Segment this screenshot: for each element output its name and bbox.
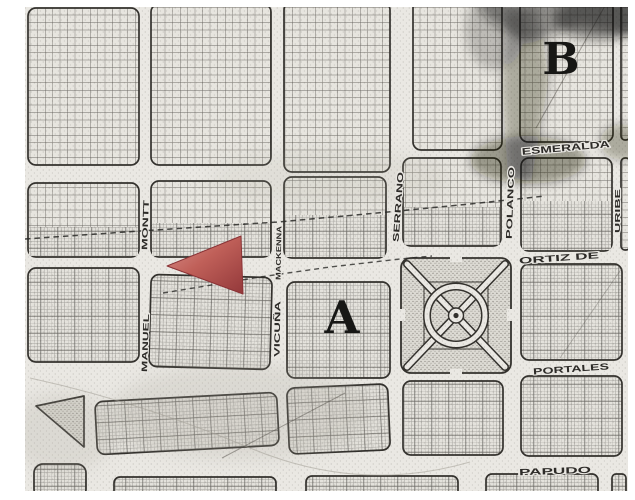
street-label-mackenna: MACKENNA bbox=[276, 226, 284, 280]
district-label-b: B bbox=[542, 34, 579, 85]
street-label-uribe: URIBE bbox=[613, 189, 622, 233]
street-label-vicuna: VICUÑA bbox=[273, 301, 283, 358]
district-label-a: A bbox=[324, 291, 361, 344]
map-viewer: ESMERALDA ORTIZ DE PORTALES PAPUDO SERRA… bbox=[0, 0, 635, 500]
map-canvas: ESMERALDA ORTIZ DE PORTALES PAPUDO SERRA… bbox=[0, 0, 635, 500]
street-label-montt: MONTT bbox=[140, 200, 151, 250]
